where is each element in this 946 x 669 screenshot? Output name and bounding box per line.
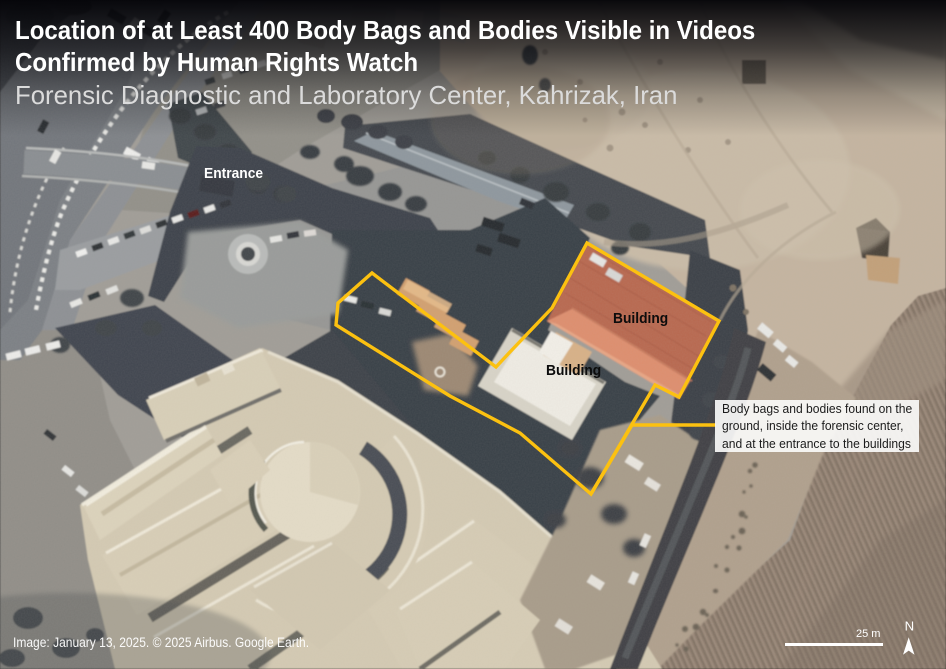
svg-text:N: N <box>905 619 915 634</box>
